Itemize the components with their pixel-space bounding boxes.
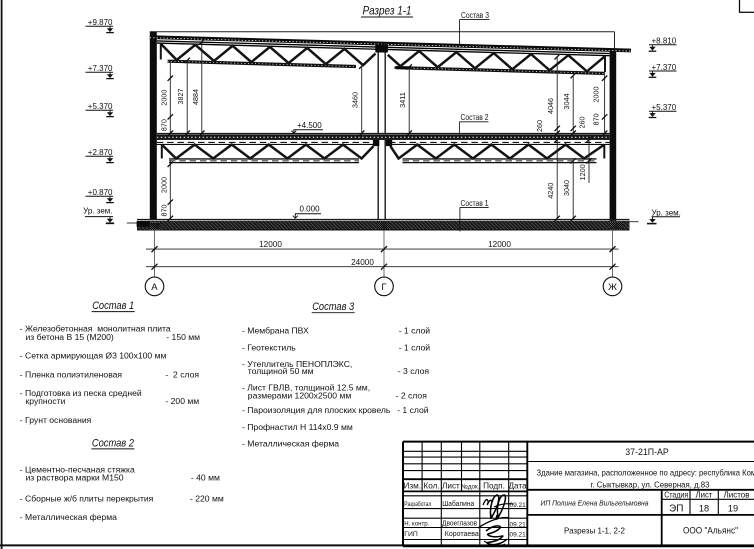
svg-text:толщиной 50 мм: толщиной 50 мм bbox=[248, 366, 314, 376]
svg-text:Разработал: Разработал bbox=[404, 500, 431, 508]
svg-text:Здание магазина, расположенное: Здание магазина, расположенное по адресу… bbox=[537, 468, 754, 478]
svg-text:- Сетка армирующая Ø3 100х100: - Сетка армирующая Ø3 100х100 мм bbox=[20, 351, 167, 361]
svg-text:№док.: №док. bbox=[461, 484, 480, 491]
svg-text:- 1 слой: - 1 слой bbox=[399, 343, 431, 353]
svg-text:09.21: 09.21 bbox=[509, 522, 526, 529]
svg-text:- 3 слоя: - 3 слоя bbox=[398, 366, 430, 376]
svg-text:Стадия: Стадия bbox=[664, 490, 688, 500]
svg-text:ЭП: ЭП bbox=[669, 504, 683, 515]
svg-text:Лист: Лист bbox=[442, 482, 460, 491]
svg-text:- Сборные ж/б плиты перекрытия: - Сборные ж/б плиты перекрытия bbox=[20, 493, 154, 503]
svg-text:+0.870: +0.870 bbox=[88, 188, 113, 197]
svg-text:+5.370: +5.370 bbox=[88, 102, 113, 111]
svg-text:870: 870 bbox=[591, 113, 600, 125]
svg-text:Ж: Ж bbox=[608, 282, 617, 293]
svg-text:крупности: крупности bbox=[26, 396, 66, 406]
svg-text:Н. контр.: Н. контр. bbox=[404, 521, 429, 528]
svg-text:Состав 3: Состав 3 bbox=[461, 10, 489, 20]
svg-text:870: 870 bbox=[159, 119, 168, 131]
svg-text:3411: 3411 bbox=[398, 92, 407, 107]
svg-text:3827: 3827 bbox=[176, 89, 185, 105]
svg-text:260: 260 bbox=[578, 117, 587, 129]
svg-text:- Пленка полиэтиленовая: - Пленка полиэтиленовая bbox=[20, 370, 123, 380]
svg-text:Коротаева: Коротаева bbox=[445, 531, 479, 538]
svg-text:3040: 3040 bbox=[562, 180, 571, 196]
svg-text:12000: 12000 bbox=[488, 240, 511, 249]
svg-text:Подп.: Подп. bbox=[483, 482, 505, 491]
svg-text:Листов: Листов bbox=[724, 490, 751, 500]
svg-text:+5.370: +5.370 bbox=[652, 103, 677, 112]
svg-text:+7.370: +7.370 bbox=[88, 64, 113, 73]
svg-text:+9.870: +9.870 bbox=[88, 18, 113, 27]
svg-text:Двоеглазов: Двоеглазов bbox=[442, 521, 477, 528]
svg-text:- Геотекстиль: - Геотекстиль bbox=[242, 343, 296, 353]
svg-text:Кол.: Кол. bbox=[423, 482, 439, 491]
svg-text:+7.370: +7.370 bbox=[652, 63, 677, 72]
svg-text:ИП Полина Елена Вильгельмовна: ИП Полина Елена Вильгельмовна bbox=[541, 498, 649, 507]
svg-text:09.21: 09.21 bbox=[509, 502, 526, 509]
svg-text:+8.810: +8.810 bbox=[652, 37, 677, 46]
svg-text:- 2 слоя: - 2 слоя bbox=[165, 370, 199, 380]
svg-text:12000: 12000 bbox=[259, 240, 282, 249]
svg-text:- Пароизоляция для плоских кро: - Пароизоляция для плоских кровель bbox=[242, 405, 391, 415]
svg-text:18: 18 bbox=[699, 503, 709, 513]
svg-text:260: 260 bbox=[535, 120, 544, 132]
svg-text:- Грунт основания: - Грунт основания bbox=[20, 415, 92, 425]
svg-text:2000: 2000 bbox=[159, 90, 168, 106]
svg-text:ООО "Альянс": ООО "Альянс" bbox=[683, 526, 738, 536]
svg-text:Состав 2: Состав 2 bbox=[92, 437, 134, 449]
svg-text:- 2 слоя: - 2 слоя bbox=[396, 390, 428, 400]
svg-text:- Металлическая ферма: - Металлическая ферма bbox=[20, 512, 117, 522]
svg-text:24000: 24000 bbox=[351, 258, 374, 267]
svg-text:- 150 мм: - 150 мм bbox=[166, 332, 200, 342]
svg-text:Разрезы 1-1, 2-2: Разрезы 1-1, 2-2 bbox=[564, 525, 625, 535]
svg-text:4046: 4046 bbox=[546, 98, 555, 114]
svg-text:- Мембрана ПВХ: - Мембрана ПВХ bbox=[242, 325, 309, 335]
svg-text:из бетона В 15 (М200): из бетона В 15 (М200) bbox=[26, 332, 114, 342]
svg-text:Шабалина: Шабалина bbox=[442, 500, 474, 508]
svg-text:Разрез 1-1: Разрез 1-1 bbox=[363, 4, 412, 18]
svg-text:0.000: 0.000 bbox=[300, 204, 321, 213]
svg-text:2000: 2000 bbox=[591, 87, 600, 103]
svg-text:Изм.: Изм. bbox=[404, 482, 422, 491]
svg-text:Ур. зем.: Ур. зем. bbox=[652, 208, 681, 217]
svg-text:Г: Г bbox=[381, 282, 387, 293]
svg-text:- 40 мм: - 40 мм bbox=[191, 473, 220, 483]
svg-text:- Металлическая ферма: - Металлическая ферма bbox=[242, 438, 339, 448]
svg-text:- Профнастил Н 114х0.9 мм: - Профнастил Н 114х0.9 мм bbox=[242, 422, 353, 432]
svg-text:3044: 3044 bbox=[562, 94, 571, 110]
svg-text:870: 870 bbox=[159, 205, 168, 217]
svg-text:09.21: 09.21 bbox=[509, 532, 526, 539]
svg-text:ГИП: ГИП bbox=[404, 531, 418, 538]
svg-text:19: 19 bbox=[728, 503, 738, 513]
svg-text:г. Сыктывкар, ул. Северная, д.: г. Сыктывкар, ул. Северная, д.83 bbox=[591, 479, 710, 489]
svg-text:4240: 4240 bbox=[546, 183, 555, 199]
svg-text:2000: 2000 bbox=[159, 177, 168, 193]
svg-text:4884: 4884 bbox=[191, 89, 200, 105]
svg-text:3460: 3460 bbox=[351, 92, 360, 108]
svg-text:1200: 1200 bbox=[578, 164, 587, 180]
svg-text:Состав 2: Состав 2 bbox=[461, 112, 489, 122]
svg-text:А: А bbox=[151, 282, 158, 293]
svg-text:Состав 3: Состав 3 bbox=[312, 301, 355, 313]
svg-text:- 200 мм: - 200 мм bbox=[165, 396, 199, 406]
svg-text:- 220 мм: - 220 мм bbox=[190, 493, 224, 503]
svg-text:из раствора марки М150: из раствора марки М150 bbox=[26, 473, 124, 483]
svg-text:Лист: Лист bbox=[696, 490, 713, 500]
svg-text:- 1 слой: - 1 слой bbox=[399, 325, 431, 335]
svg-text:Ур. зем.: Ур. зем. bbox=[83, 206, 112, 215]
svg-text:+2.870: +2.870 bbox=[88, 148, 113, 157]
svg-text:Состав 1: Состав 1 bbox=[461, 198, 489, 208]
svg-text:37-21П-АР: 37-21П-АР bbox=[625, 447, 669, 458]
svg-text:- 1 слой: - 1 слой bbox=[397, 405, 429, 415]
svg-text:Дата: Дата bbox=[509, 482, 528, 491]
svg-text:+4.500: +4.500 bbox=[297, 121, 322, 130]
svg-text:размерами 1200х2500 мм: размерами 1200х2500 мм bbox=[248, 390, 352, 400]
svg-text:Состав 1: Состав 1 bbox=[92, 300, 134, 312]
